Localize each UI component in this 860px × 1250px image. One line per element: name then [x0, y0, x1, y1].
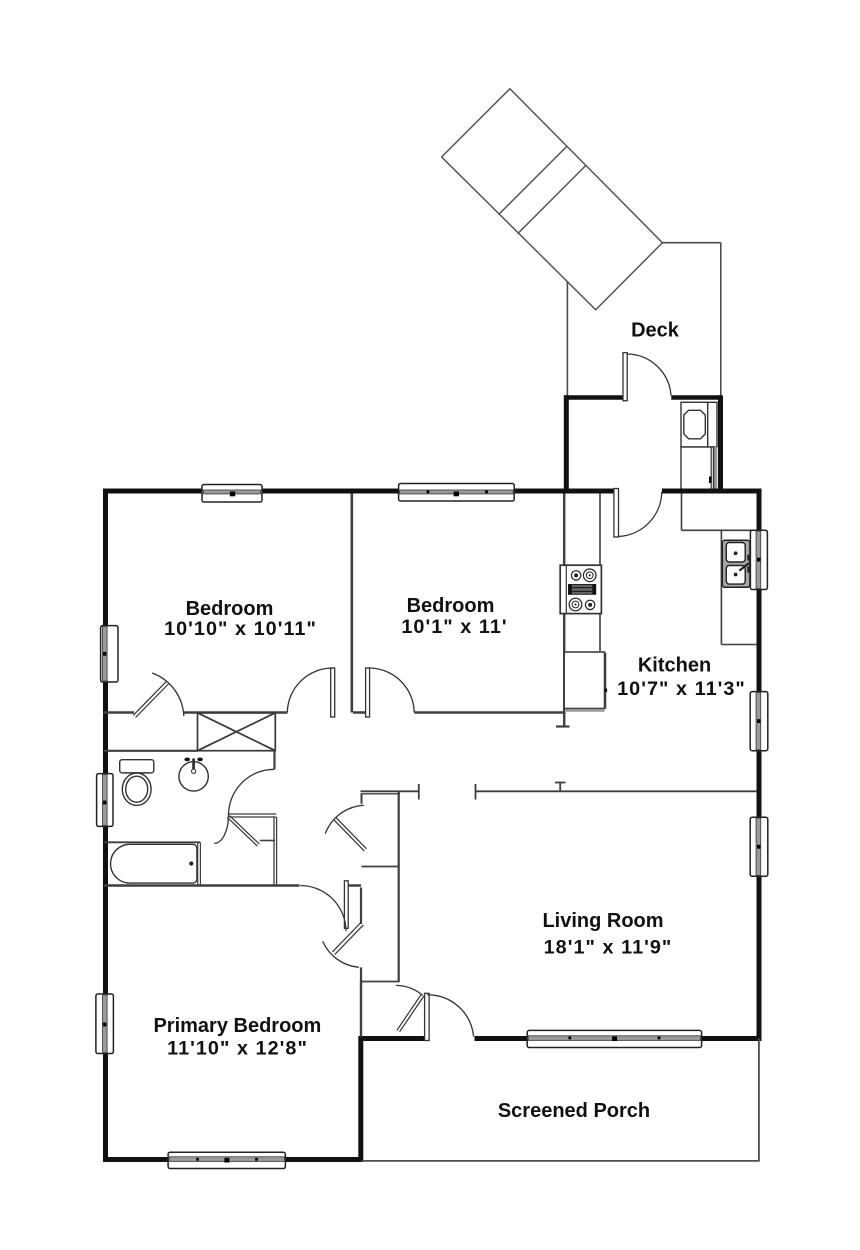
svg-text:Primary Bedroom: Primary Bedroom: [153, 1015, 321, 1037]
svg-text:10'7" x 11'3": 10'7" x 11'3": [617, 678, 746, 700]
svg-text:Living Room: Living Room: [542, 910, 663, 932]
svg-text:10'10" x 10'11": 10'10" x 10'11": [164, 618, 317, 640]
svg-text:10'1" x 11': 10'1" x 11': [401, 616, 507, 638]
svg-text:Deck: Deck: [631, 320, 680, 342]
svg-text:11'10" x 12'8": 11'10" x 12'8": [167, 1037, 308, 1059]
svg-text:Kitchen: Kitchen: [638, 654, 711, 676]
svg-text:Bedroom: Bedroom: [186, 598, 274, 620]
svg-text:Screened Porch: Screened Porch: [498, 1100, 650, 1122]
svg-text:18'1" x 11'9": 18'1" x 11'9": [544, 936, 673, 958]
svg-text:Bedroom: Bedroom: [407, 595, 495, 617]
